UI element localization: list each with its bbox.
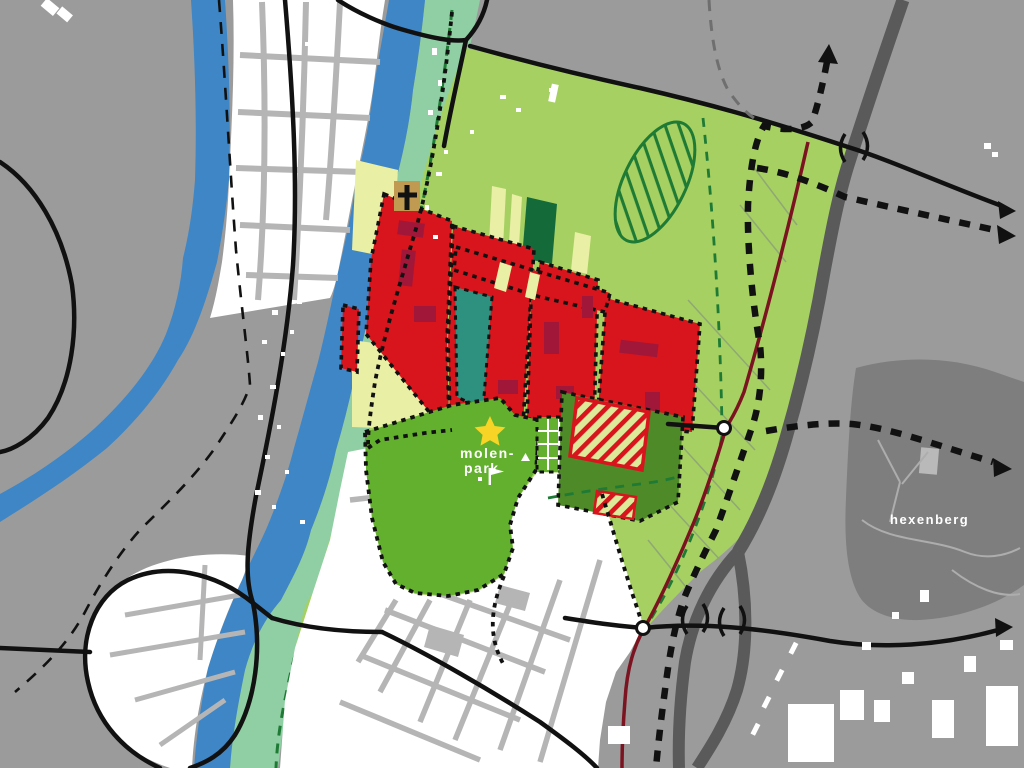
building <box>862 642 871 650</box>
building <box>425 205 429 210</box>
building <box>932 700 954 738</box>
existing-building <box>414 306 436 322</box>
reserve-parcel-hatched <box>570 398 649 470</box>
building <box>788 704 834 762</box>
building <box>305 42 309 46</box>
building <box>285 470 289 474</box>
building <box>590 688 603 704</box>
planning-map: molen- park <box>0 0 1024 768</box>
building <box>290 330 294 334</box>
molenpark-label-line2: park <box>464 460 500 476</box>
building <box>281 352 285 356</box>
building <box>272 310 278 315</box>
building <box>277 425 281 429</box>
existing-building <box>544 322 559 354</box>
building <box>428 110 433 115</box>
existing-building <box>498 380 518 394</box>
building <box>986 686 1018 746</box>
map-canvas: molen- park <box>0 0 1024 768</box>
hexenberg-label: hexenberg <box>890 512 969 527</box>
building <box>840 690 864 720</box>
church <box>394 181 420 211</box>
building <box>992 152 998 157</box>
building <box>297 300 302 304</box>
building <box>902 672 914 684</box>
building <box>444 150 448 154</box>
building <box>892 612 899 619</box>
building <box>516 108 521 112</box>
molenpark-label-line1: molen- <box>460 445 515 461</box>
building <box>548 744 564 756</box>
development-parcel <box>341 305 359 372</box>
building <box>1000 640 1013 650</box>
building <box>565 700 583 726</box>
building <box>470 130 474 134</box>
building <box>920 590 929 602</box>
building <box>436 172 442 176</box>
node-circle <box>718 422 731 435</box>
hexenberg-hill <box>845 359 1024 620</box>
building <box>984 143 991 149</box>
building <box>964 656 976 672</box>
existing-building <box>582 296 593 318</box>
building <box>258 415 263 420</box>
building <box>262 340 267 344</box>
building <box>270 385 276 389</box>
building <box>608 726 630 744</box>
building <box>874 700 890 722</box>
building <box>300 520 305 524</box>
building <box>500 95 506 99</box>
building <box>438 80 442 86</box>
node-circle <box>637 622 650 635</box>
hill-shape <box>845 359 1024 620</box>
building <box>265 455 270 459</box>
reserve-parcel-hatched <box>594 491 636 519</box>
park-dot-icon <box>478 477 482 481</box>
building <box>272 505 276 509</box>
building <box>432 48 437 55</box>
building <box>255 490 261 495</box>
building <box>433 235 438 239</box>
